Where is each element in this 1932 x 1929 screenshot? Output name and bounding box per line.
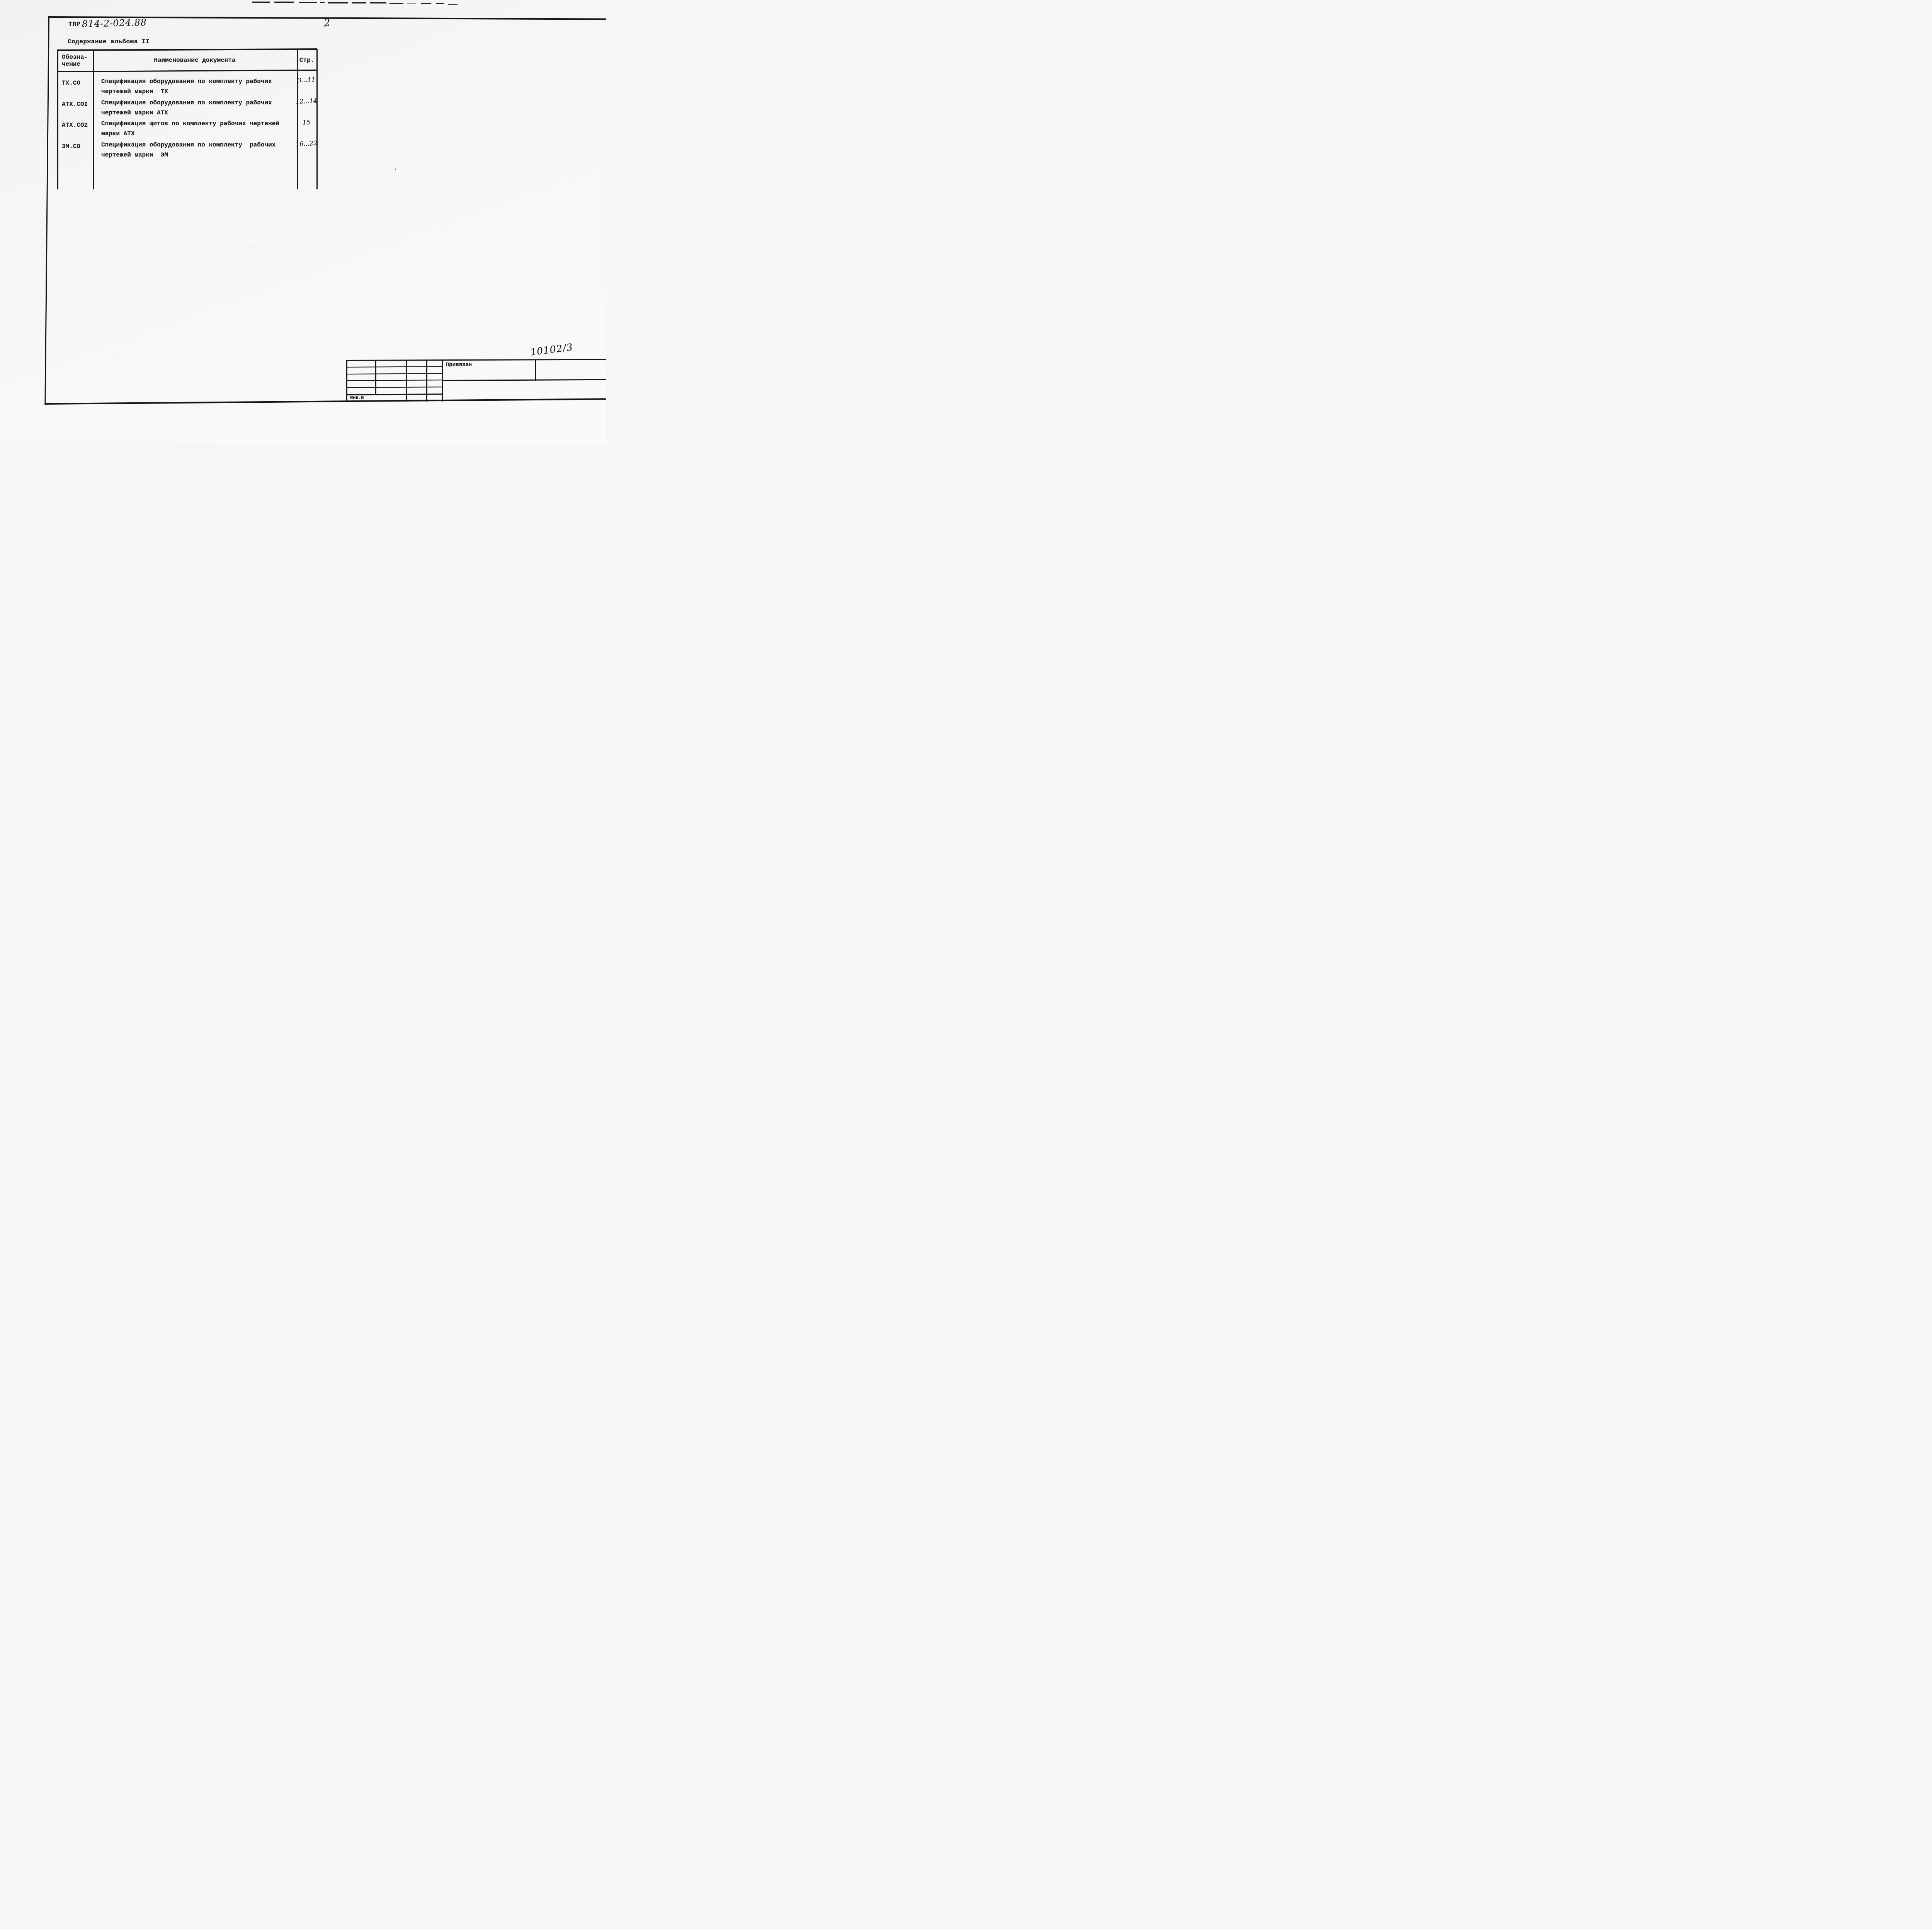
scan-dash: [370, 2, 386, 3]
row-designation: АТХ.СО2: [62, 122, 88, 129]
title-block-binding-label: Привязан: [446, 362, 472, 368]
page-number-handwritten: 2: [323, 17, 331, 29]
header-designation-line1: Обозна-: [62, 54, 88, 61]
scan-dash: [352, 2, 366, 3]
row-pages-handwritten: 15: [294, 118, 320, 126]
table-column-separator-designation: [93, 50, 94, 189]
row-name-line2: чертежей марки ТХ: [101, 89, 168, 95]
title-block-inventory-label: Инв.№: [350, 395, 364, 400]
row-name-line1: Спецификация оборудования по комплекту р…: [101, 78, 272, 85]
scan-dash: [407, 3, 416, 3]
row-pages-handwritten: 16...22: [294, 139, 320, 148]
scanned-document-page: ТПР 814-2-024.88 2 Содержание альбома II…: [0, 0, 606, 445]
table-top-border: [57, 48, 317, 51]
ink-speck: [395, 169, 396, 170]
section-title: Содержание альбома II: [68, 39, 150, 45]
title-block-grid-vertical: [375, 360, 376, 395]
row-name-line1: Спецификация оборудования по комплекту р…: [101, 142, 276, 148]
document-code-number-handwritten: 814-2-024.88: [82, 17, 147, 29]
title-block-grid-row-line: [346, 373, 443, 375]
title-block-handwritten-number: 10102/3: [530, 341, 574, 358]
title-block-grid-row-line: [346, 380, 443, 381]
page-frame-left-border: [44, 16, 49, 405]
scan-dash: [448, 4, 457, 5]
scan-dash: [389, 3, 403, 4]
scan-dash: [274, 2, 294, 3]
row-pages-handwritten: 12...14: [294, 97, 320, 105]
row-designation: АТХ.СОI: [62, 101, 88, 108]
scan-dash: [252, 2, 270, 3]
row-designation: ЭМ.СО: [62, 143, 80, 150]
scan-dash: [328, 2, 348, 3]
row-name-line2: чертежей марки ЭМ: [101, 152, 168, 158]
title-block-top-border: [346, 359, 606, 361]
table-header-separator: [57, 70, 317, 72]
scan-dash: [299, 2, 317, 3]
table-left-border: [57, 49, 58, 189]
title-block-grid-row-line: [346, 366, 443, 368]
row-name-line2: чертежей марки АТХ: [101, 110, 168, 116]
scan-dash: [421, 3, 431, 4]
row-designation: ТХ.СО: [62, 80, 80, 87]
header-pages: Стр.: [297, 57, 317, 64]
title-block-right-divider-line: [442, 379, 606, 381]
header-document-name: Наименование документа: [93, 57, 297, 64]
ink-speck: [114, 359, 115, 359]
header-designation-line2: чение: [62, 61, 80, 68]
document-code-prefix: ТПР: [68, 21, 81, 28]
scan-dash: [436, 3, 444, 4]
row-name-line1: Спецификация оборудования по комплекту р…: [101, 100, 272, 106]
scan-dash: [320, 2, 325, 3]
ink-speck: [250, 246, 251, 247]
title-block-grid-row-line: [346, 386, 443, 388]
row-pages-handwritten: 3...11: [294, 75, 320, 84]
page-frame-bottom-border: [45, 398, 606, 405]
title-block-right-vertical: [535, 359, 536, 381]
row-name-line1: Спецификация щитов по комплекту рабочих …: [101, 121, 279, 127]
row-name-line2: марки АТХ: [101, 131, 134, 137]
